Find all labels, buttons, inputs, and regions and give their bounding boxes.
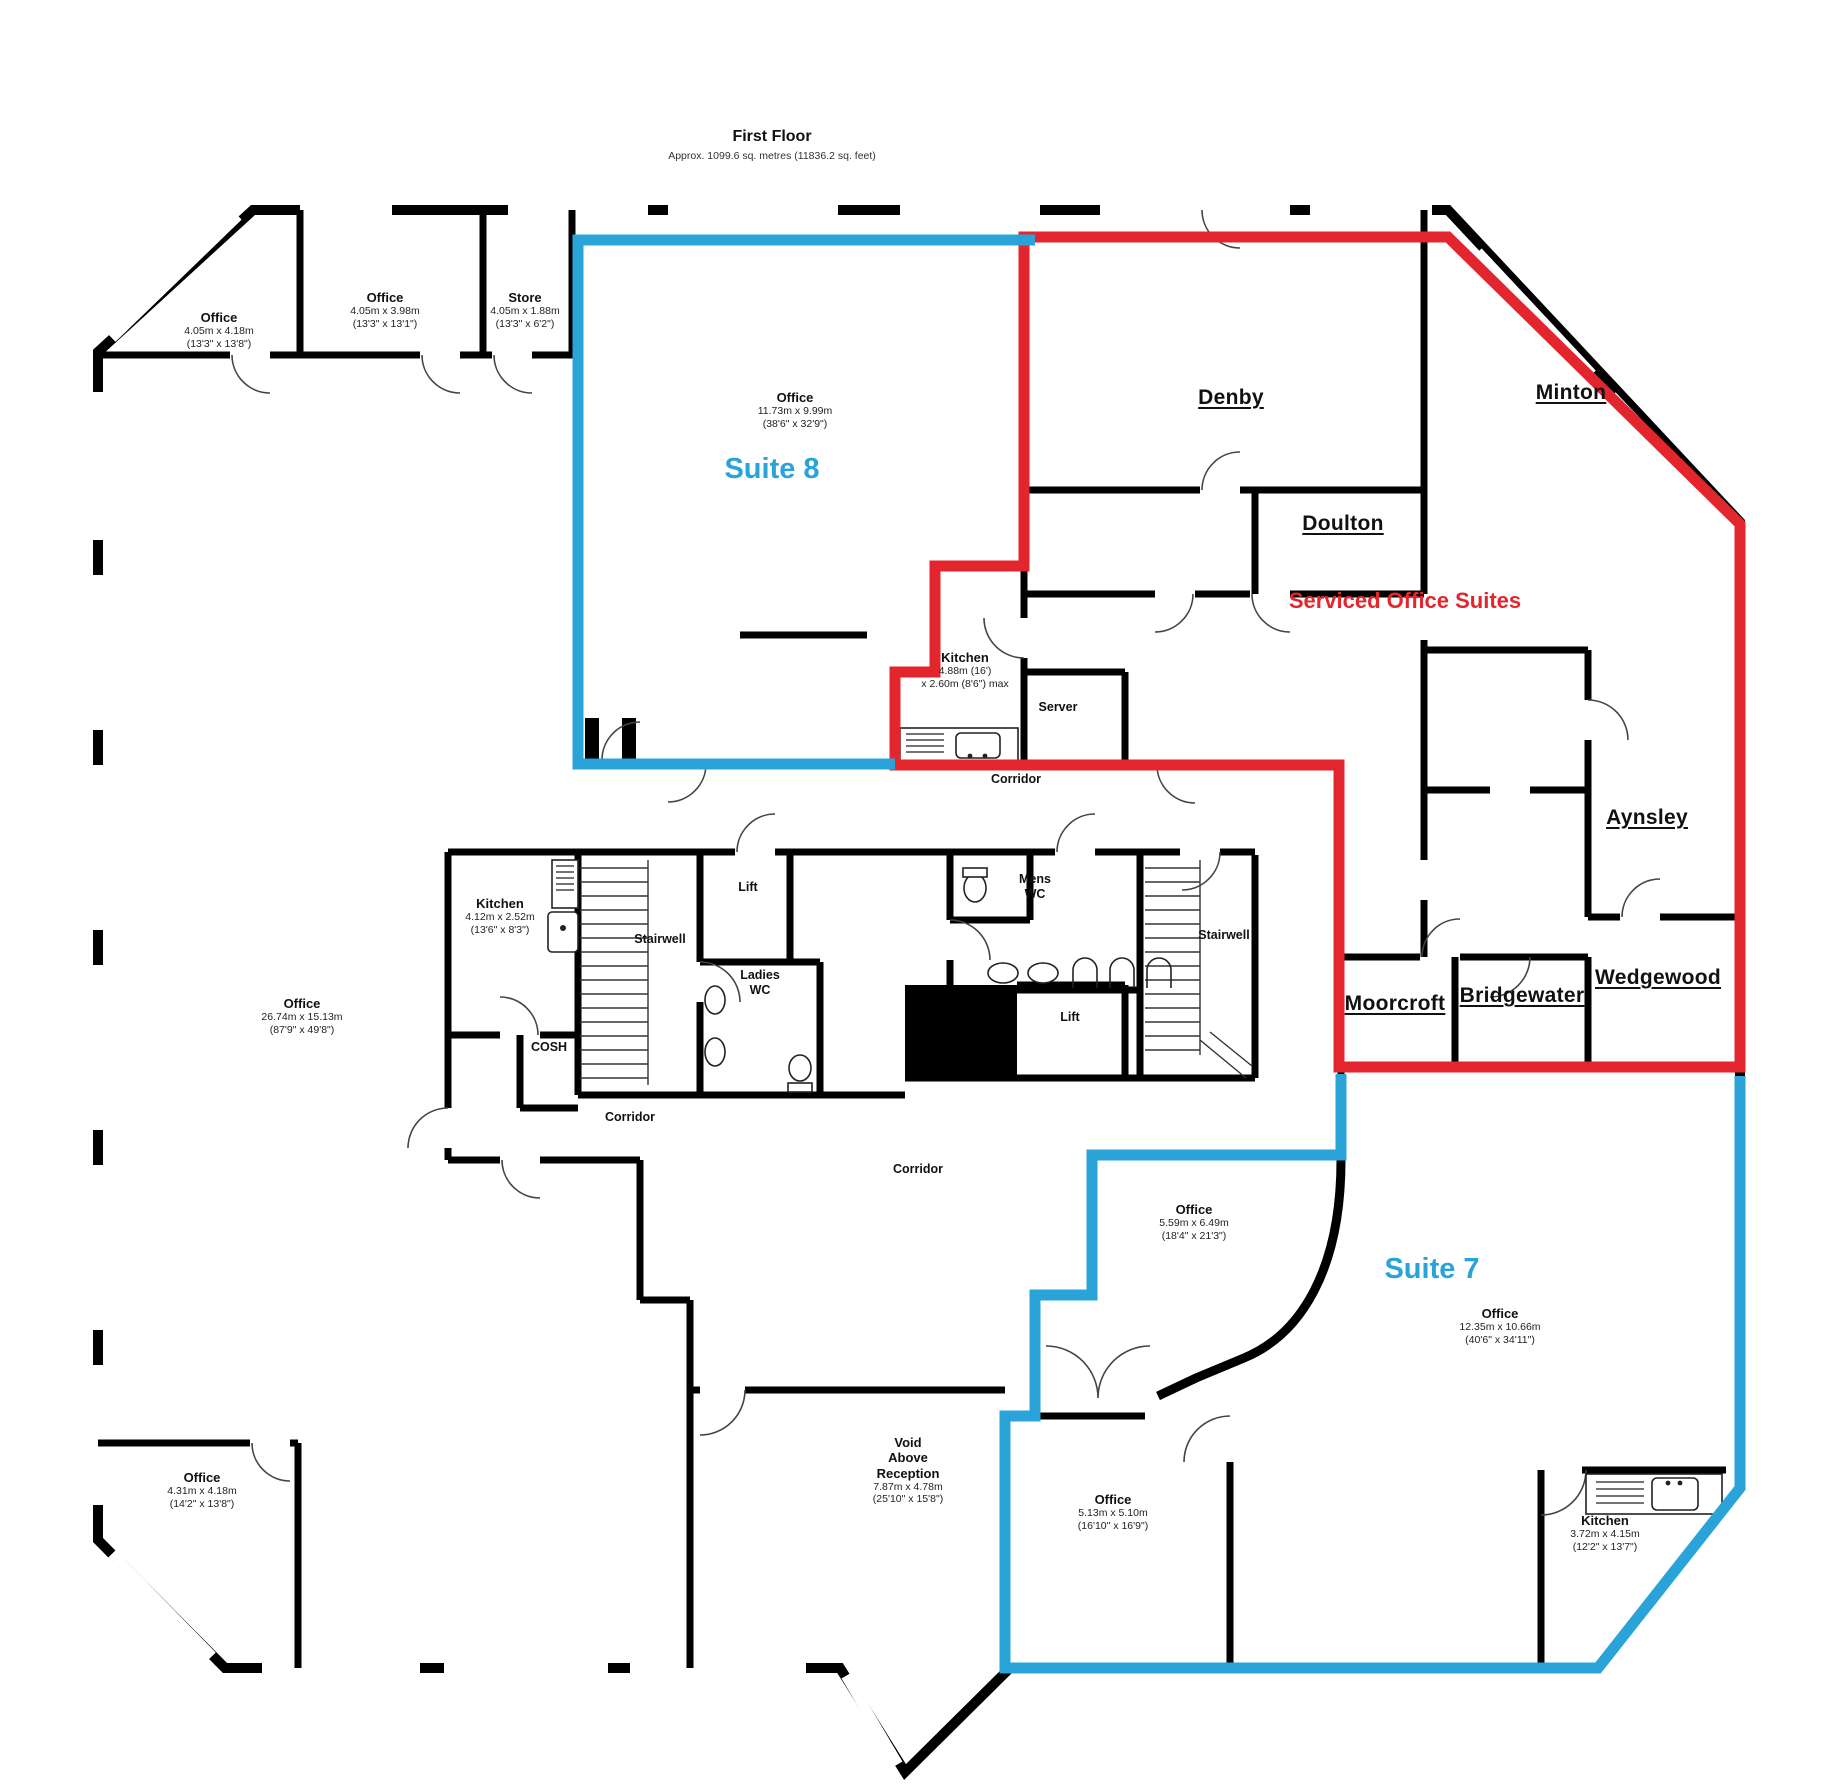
sink-icon bbox=[1028, 963, 1058, 983]
room-lift-east: Lift bbox=[1060, 1010, 1079, 1025]
floorplan-page: First FloorApprox. 1099.6 sq. metres (11… bbox=[0, 0, 1845, 1785]
floorplan-drawing bbox=[0, 0, 1845, 1785]
sink-icon bbox=[988, 963, 1018, 983]
toilet-icon bbox=[964, 874, 986, 902]
room-server: Server bbox=[1039, 700, 1078, 715]
room-kitchen-suite7: Kitchen3.72m x 4.15m(12'2" x 13'7") bbox=[1570, 1513, 1639, 1553]
room-stairwell-east: Stairwell bbox=[1198, 928, 1249, 943]
corridor-center: Corridor bbox=[893, 1162, 943, 1177]
room-office-431: Office4.31m x 4.18m(14'2" x 13'8") bbox=[167, 1470, 236, 1510]
room-denby: Denby bbox=[1198, 386, 1264, 411]
corridor-north: Corridor bbox=[991, 772, 1041, 787]
room-office-nw1: Office4.05m x 4.18m(13'3" x 13'8") bbox=[184, 310, 253, 350]
room-bridgewater: Bridgewater bbox=[1460, 984, 1585, 1009]
sink-icon bbox=[705, 1038, 725, 1066]
room-aynsley: Aynsley bbox=[1606, 806, 1688, 831]
room-office-nw2: Office4.05m x 3.98m(13'3" x 13'1") bbox=[350, 290, 419, 330]
kitchen-sink bbox=[1652, 1478, 1698, 1510]
room-office-1235: Office12.35m x 10.66m(40'6" x 34'11") bbox=[1459, 1306, 1540, 1346]
room-store: Store4.05m x 1.88m(13'3" x 6'2") bbox=[490, 290, 559, 330]
room-kitchen-core: Kitchen4.12m x 2.52m(13'6" x 8'3") bbox=[465, 896, 534, 936]
room-cosh: COSH bbox=[531, 1040, 567, 1055]
kitchen-sink bbox=[956, 733, 1000, 758]
room-kitchen-suite8: Kitchen4.88m (16')x 2.60m (8'6") max bbox=[921, 650, 1008, 690]
room-void: VoidAboveReception7.87m x 4.78m(25'10" x… bbox=[873, 1435, 943, 1506]
room-office-559: Office5.59m x 6.49m(18'4" x 21'3") bbox=[1159, 1202, 1228, 1242]
room-office-513: Office5.13m x 5.10m(16'10" x 16'9") bbox=[1078, 1492, 1148, 1532]
toilet-icon bbox=[789, 1055, 811, 1081]
sink-icon bbox=[705, 986, 725, 1014]
room-lift-west: Lift bbox=[738, 880, 757, 895]
serviced-label: Serviced Office Suites bbox=[1289, 588, 1521, 614]
room-office-suite8: Office11.73m x 9.99m(38'6" x 32'9") bbox=[758, 390, 833, 430]
corridor-west: Corridor bbox=[605, 1110, 655, 1125]
suite8-label: Suite 8 bbox=[724, 452, 819, 486]
room-doulton: Doulton bbox=[1302, 512, 1383, 537]
room-moorcroft: Moorcroft bbox=[1345, 992, 1446, 1017]
floor-subtitle: Approx. 1099.6 sq. metres (11836.2 sq. f… bbox=[668, 150, 876, 162]
room-minton: Minton bbox=[1536, 381, 1607, 406]
lift-shaft bbox=[905, 985, 1017, 1078]
room-ladies-wc: LadiesWC bbox=[740, 968, 780, 998]
room-stairwell-west: Stairwell bbox=[634, 932, 685, 947]
kitchen-sink bbox=[548, 912, 578, 952]
suite7-label: Suite 7 bbox=[1384, 1252, 1479, 1286]
room-mens-wc: MensWC bbox=[1019, 872, 1051, 902]
floor-title: First Floor bbox=[732, 128, 811, 147]
room-wedgewood: Wedgewood bbox=[1595, 966, 1721, 991]
room-office-west: Office26.74m x 15.13m(87'9" x 49'8") bbox=[261, 996, 342, 1036]
